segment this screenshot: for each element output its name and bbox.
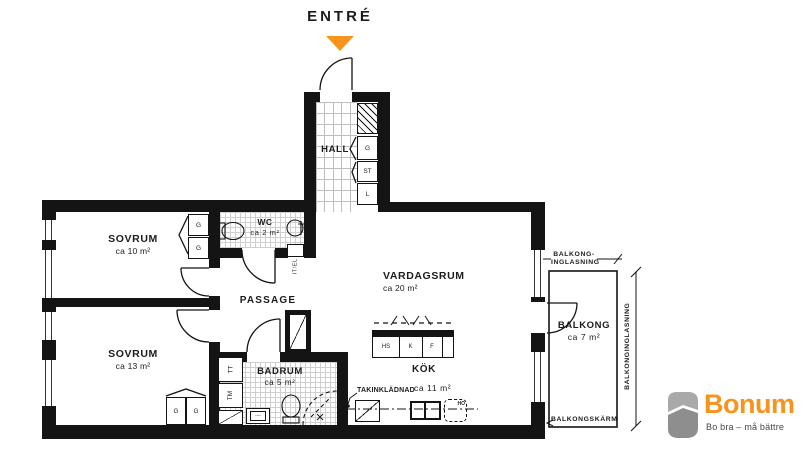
wall [304, 92, 320, 102]
sink-divider [424, 403, 426, 418]
wall [209, 212, 220, 268]
balcony-outline [549, 271, 617, 427]
balkonginglasning-vertical-label: BALKONGINGLASNING [624, 286, 632, 406]
closet-g: G [186, 397, 206, 425]
takinkladnad-label: TAKINKLÄDNAD [357, 387, 415, 396]
closet-g-label: G [193, 408, 198, 415]
room-area: ca 20 m² [383, 283, 465, 294]
bench-box [218, 410, 243, 425]
balkong-inglasning-line2: INGLASNING [551, 259, 597, 267]
counter-cabinet [355, 400, 380, 422]
closet-st-label: ST [363, 168, 371, 175]
wall [378, 92, 390, 212]
room-label-sovrum10: SOVRUM ca 10 m² [73, 233, 193, 257]
closet-l: L [357, 183, 378, 205]
closet-door-chevron [166, 389, 206, 396]
wall [209, 248, 242, 258]
bonum-tagline: Bo bra – må bättre [706, 422, 784, 432]
bonum-wordmark: Bonum [704, 389, 794, 420]
room-area: ca 5 m² [245, 378, 315, 388]
kitchen-sink [410, 401, 441, 420]
hs-label: HS [382, 344, 390, 350]
wc-door-arc [242, 250, 275, 283]
f-label: F [430, 344, 434, 350]
room-area: ca 13 m² [73, 361, 193, 372]
dryer-box: TT [218, 357, 243, 382]
kitchen-island: HS K F [372, 330, 454, 358]
bathroom-sink-cabinet: ·–· [246, 408, 270, 424]
cooktop: HO [444, 399, 467, 422]
balkong-inglasning-line1: BALKONG- [551, 251, 597, 259]
k-label: K [408, 344, 412, 350]
bonum-logo: Bonum Bo bra – må bättre [662, 388, 807, 444]
closet-st: ST [357, 161, 378, 182]
entry-door-arc [320, 58, 352, 90]
room-label-hall: HALL [314, 144, 356, 156]
room-name: KÖK [400, 364, 448, 377]
balkongskarm-label: BALKONGSKÄRM [551, 416, 607, 424]
badrum-door-arc [247, 319, 280, 352]
room-area: ca 10 m² [73, 246, 193, 257]
washer-box: TM [218, 383, 243, 408]
closet-l-label: L [366, 191, 370, 198]
freezer: F [422, 337, 443, 357]
floor-plan: ENTRÉ G ST L G G G G [0, 0, 810, 455]
wall [42, 340, 56, 360]
closet-g: G [166, 397, 186, 425]
room-area: ca 2 m² [240, 228, 290, 237]
island-rail-ticks [391, 316, 431, 325]
wall [42, 200, 56, 220]
window [42, 220, 56, 240]
wall [531, 333, 545, 352]
wall [42, 200, 316, 212]
window [531, 250, 545, 297]
room-name: VARDAGSRUM [383, 270, 465, 283]
closet-g-label: G [196, 245, 201, 252]
room-name: BALKONG [554, 320, 614, 332]
entry-arrow-icon [326, 36, 354, 51]
hall-shaft-hatch [357, 103, 378, 134]
closet-g-label: G [196, 222, 201, 229]
dryer-label: TT [227, 366, 234, 374]
sovrum13-door-arc [177, 310, 209, 342]
ho-label: HO [458, 401, 466, 407]
room-name: SOVRUM [73, 348, 193, 361]
wall [337, 352, 348, 425]
room-name: SOVRUM [73, 233, 193, 246]
sink-basin: ·–· [250, 411, 266, 421]
it-el-label: IT/EL [293, 251, 300, 281]
washer-label: TM [227, 391, 234, 400]
wall [390, 202, 545, 212]
wall [42, 298, 209, 307]
window [531, 352, 545, 402]
room-name: WC [240, 217, 290, 228]
wall [42, 425, 545, 439]
room-label-badrum: BADRUM ca 5 m² [245, 366, 315, 388]
wall [42, 240, 56, 250]
room-label-wc: WC ca 2 m² [240, 217, 290, 237]
closet-g-label: G [365, 145, 370, 152]
window [42, 360, 56, 406]
room-label-vardagsrum: VARDAGSRUM ca 20 m² [383, 270, 465, 294]
wall [304, 92, 316, 258]
room-label-passage: PASSAGE [218, 295, 318, 308]
bonum-logo-icon [664, 390, 702, 440]
wall [531, 202, 545, 250]
dim-tick [614, 254, 622, 264]
closet-g: G [357, 136, 378, 160]
window [42, 250, 56, 300]
room-area: ca 11 m² [414, 383, 448, 394]
room-area: ca 7 m² [554, 332, 614, 343]
closet-g-label: G [173, 408, 178, 415]
window [42, 312, 56, 340]
wall [531, 297, 545, 302]
room-label-sovrum13: SOVRUM ca 13 m² [73, 348, 193, 372]
hall-floor [316, 102, 357, 212]
dim-tick [631, 267, 641, 277]
fridge: K [399, 337, 423, 357]
dim-tick [631, 421, 641, 431]
entry-label: ENTRÉ [300, 8, 380, 27]
tall-cabinet: HS [373, 337, 400, 357]
sovrum10-door-arc [181, 268, 209, 296]
room-label-balkong: BALKONG ca 7 m² [554, 320, 614, 343]
balkong-inglasning-label: BALKONG- INGLASNING [551, 251, 597, 267]
shaft-box [285, 310, 311, 354]
room-name: BADRUM [245, 366, 315, 378]
logo-shape-bottom [668, 408, 698, 438]
